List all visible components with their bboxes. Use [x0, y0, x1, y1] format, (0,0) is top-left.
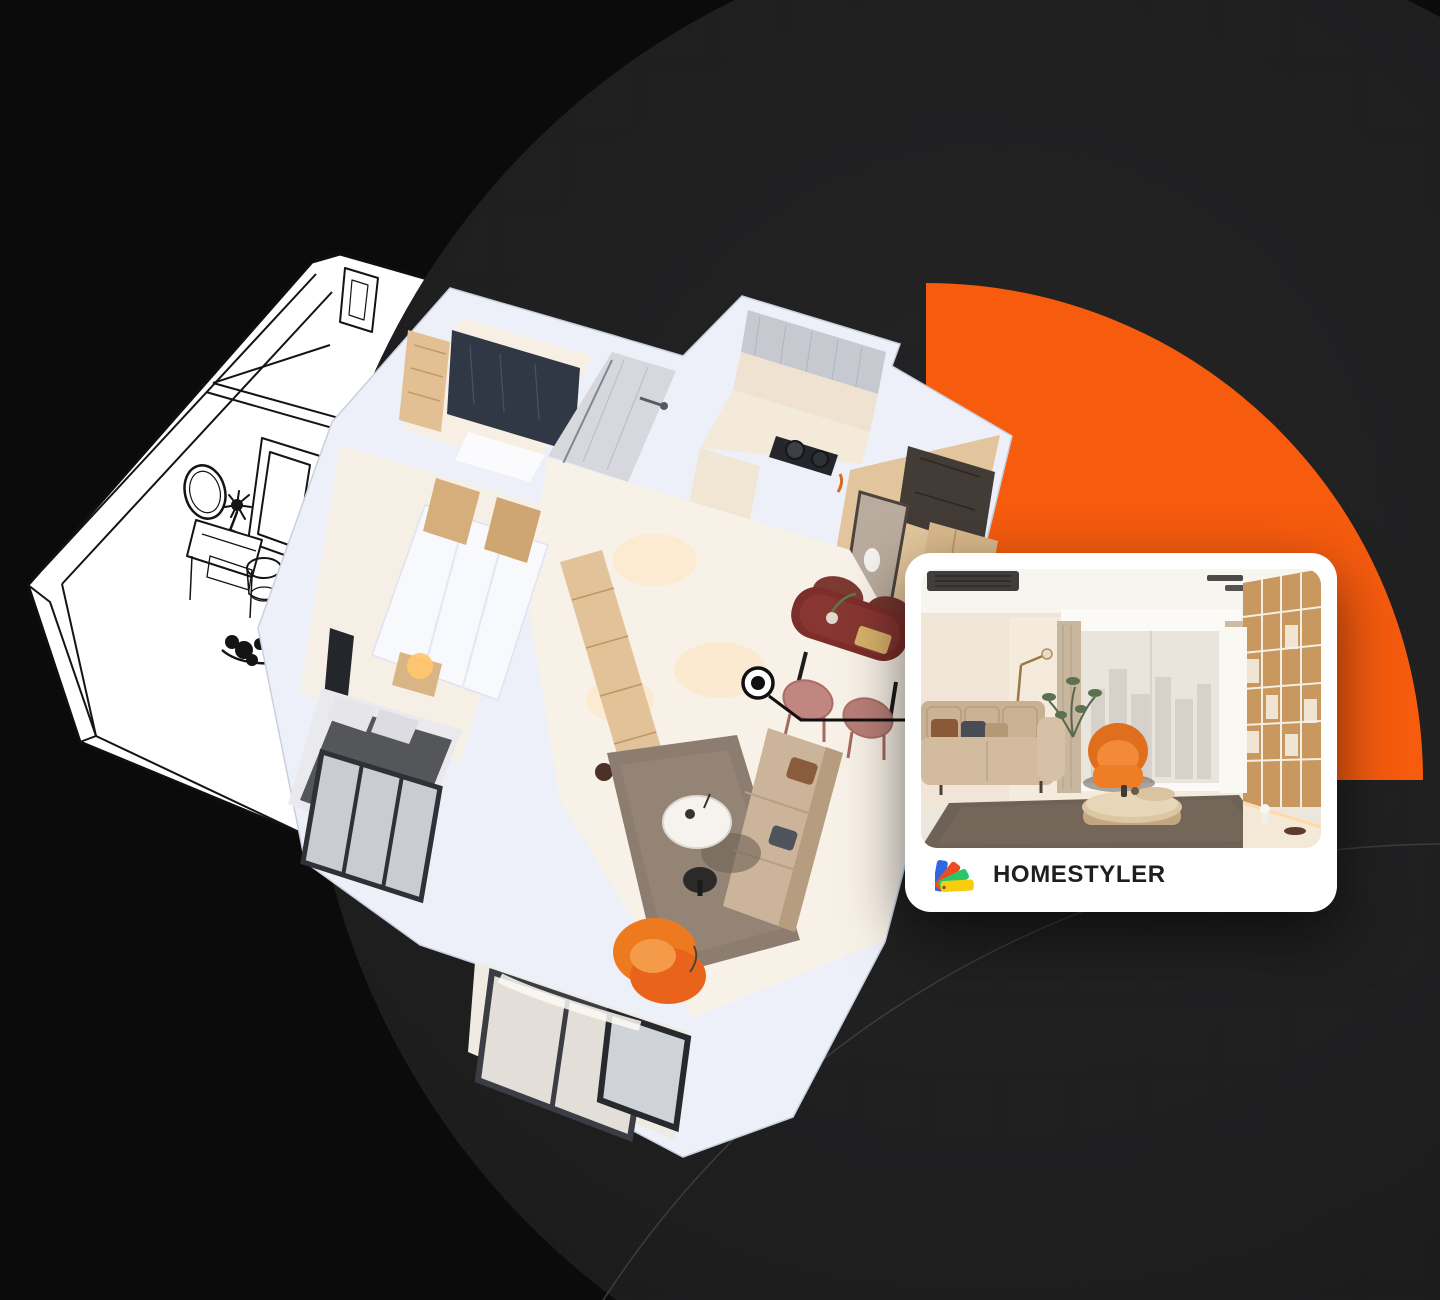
living-room-photo — [921, 569, 1321, 848]
render-preview-card[interactable]: HOMESTYLER — [905, 553, 1337, 912]
logo-pivot-dot — [942, 886, 945, 889]
logo-swatch-yellow — [940, 879, 974, 892]
homestyler-logo-icon — [935, 854, 977, 896]
hero-section: HOMESTYLER — [0, 0, 1440, 1300]
brand-name: HOMESTYLER — [993, 861, 1166, 889]
living-room-render-illustration — [921, 569, 1321, 848]
brand-row: HOMESTYLER — [935, 848, 1317, 902]
hotspot-dot — [751, 676, 765, 690]
